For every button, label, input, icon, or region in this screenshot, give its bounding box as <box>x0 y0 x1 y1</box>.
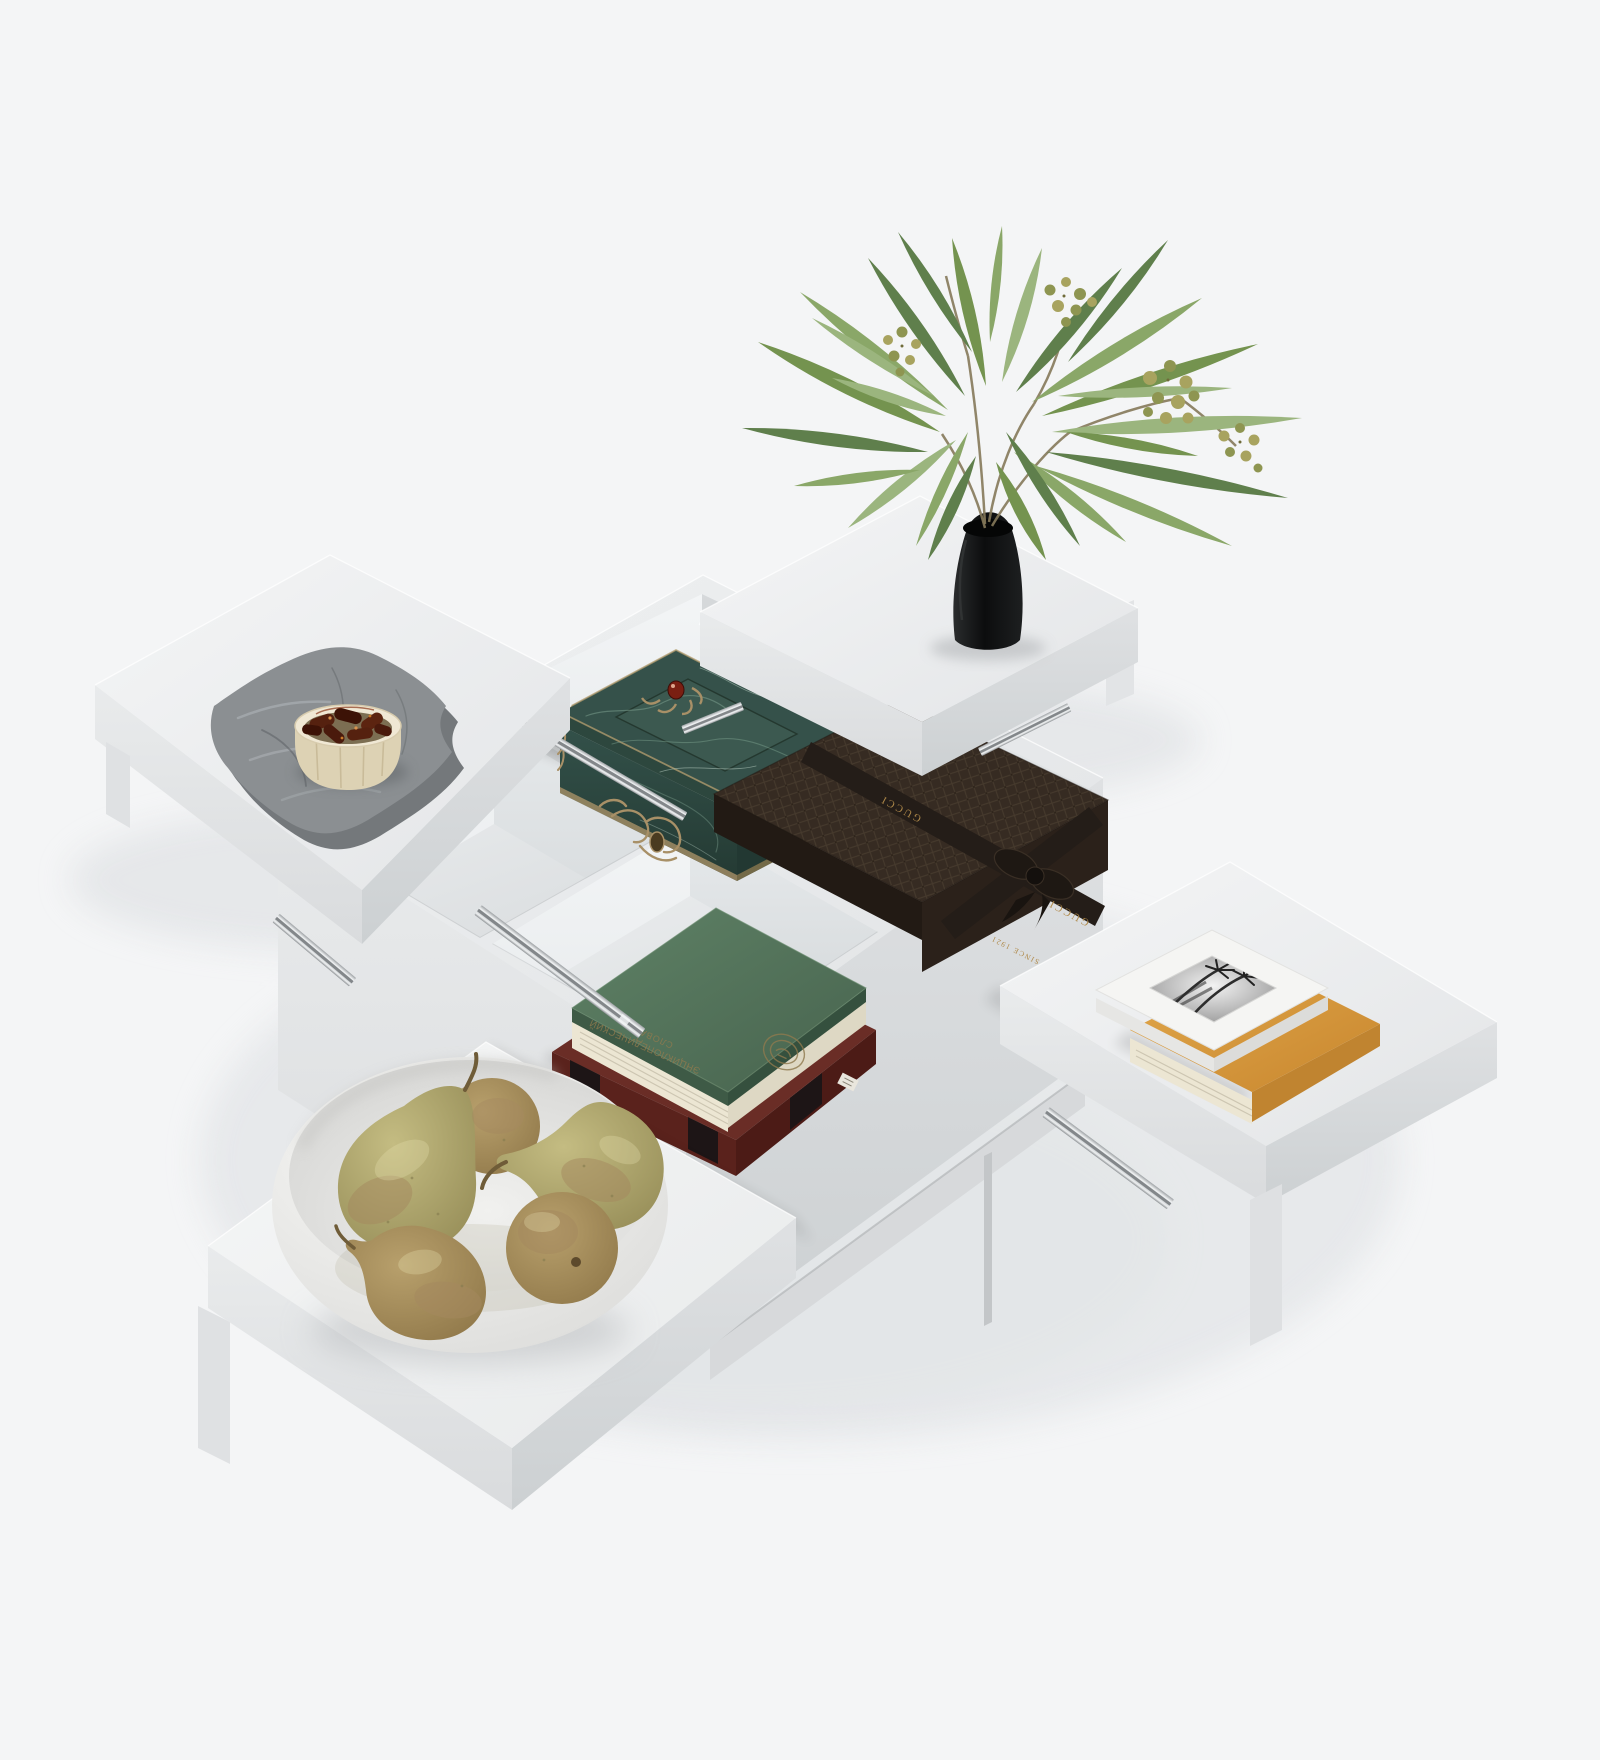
product-render: GUCCI GUCCI SINCE 1921 ЭНЦИКЛОПЕД <box>0 0 1600 1760</box>
module-groove <box>984 1152 992 1326</box>
support-foot <box>106 742 130 828</box>
support-foot <box>198 1306 230 1464</box>
support-foot <box>1250 1184 1282 1346</box>
pear-bowl <box>272 1054 668 1364</box>
coffee-table-scene: GUCCI GUCCI SINCE 1921 ЭНЦИКЛОПЕД <box>0 0 1600 1760</box>
dates-bowl <box>295 705 408 790</box>
